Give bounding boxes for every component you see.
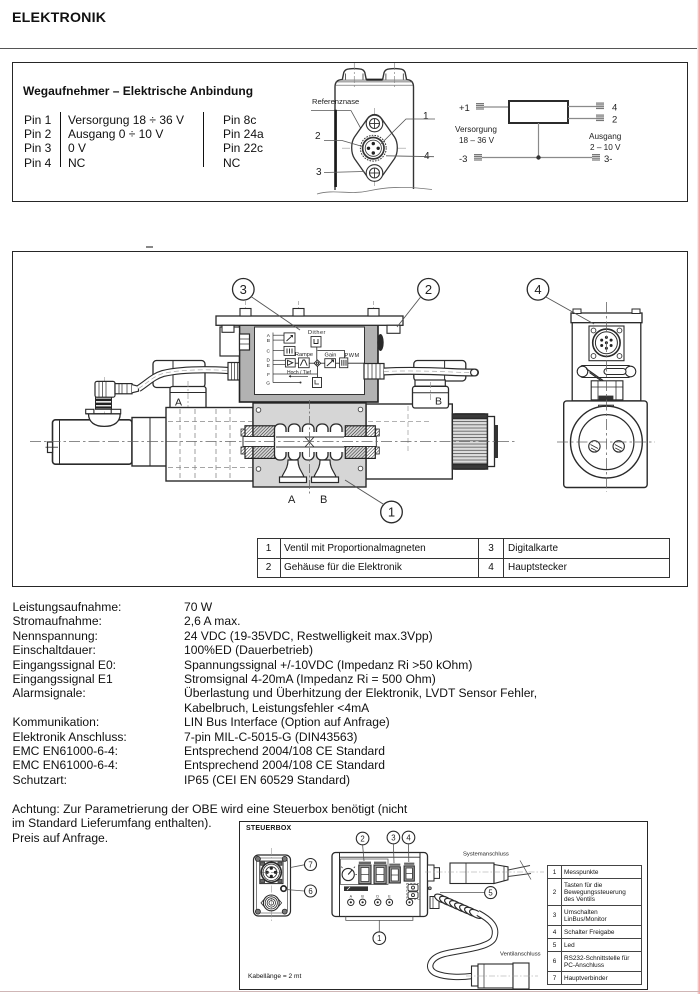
svg-text:Referenznase: Referenznase: [312, 97, 359, 106]
svg-text:3: 3: [316, 167, 322, 178]
svg-text:Versorgung: Versorgung: [455, 125, 497, 134]
svg-text:4: 4: [612, 103, 617, 114]
svg-text:2: 2: [425, 282, 432, 297]
svg-text:2: 2: [315, 131, 321, 142]
svg-text:7: 7: [308, 860, 312, 869]
svg-text:4: 4: [406, 833, 411, 842]
svg-text:Hoch / Tief: Hoch / Tief: [287, 370, 312, 376]
svg-text:Rampe: Rampe: [295, 352, 313, 358]
svg-text:-3: -3: [459, 154, 467, 165]
svg-text:2 – 10 V: 2 – 10 V: [590, 143, 621, 152]
svg-text:5: 5: [488, 888, 493, 897]
svg-text:D: D: [376, 895, 379, 899]
svg-text:Systemanschluss: Systemanschluss: [463, 852, 509, 858]
svg-text:C: C: [267, 348, 271, 354]
svg-text:B: B: [435, 396, 442, 408]
svg-text:3: 3: [240, 282, 247, 297]
svg-text:6: 6: [308, 887, 312, 896]
svg-text:E: E: [267, 363, 270, 369]
svg-text:18 – 36 V: 18 – 36 V: [459, 136, 495, 145]
svg-text:A: A: [288, 494, 296, 506]
svg-text:Ausgang: Ausgang: [589, 132, 622, 141]
svg-text:3-: 3-: [604, 154, 612, 165]
svg-text:2: 2: [612, 115, 617, 126]
svg-text:+1: +1: [459, 103, 470, 114]
svg-text:2: 2: [360, 834, 364, 843]
svg-text:1: 1: [377, 934, 381, 943]
svg-text:Dither: Dither: [308, 330, 326, 336]
svg-text:G: G: [266, 380, 270, 386]
svg-text:1: 1: [423, 111, 429, 122]
svg-text:3: 3: [391, 833, 395, 842]
svg-text:Ventilanschluss: Ventilanschluss: [500, 952, 541, 958]
svg-text:D: D: [267, 358, 271, 364]
svg-text:A: A: [175, 397, 182, 409]
svg-text:B: B: [320, 494, 327, 506]
svg-text:Gain: Gain: [325, 353, 337, 359]
svg-text:B: B: [267, 338, 270, 344]
svg-text:4: 4: [534, 282, 541, 297]
svg-text:F: F: [267, 372, 270, 378]
svg-text:1: 1: [388, 505, 395, 520]
